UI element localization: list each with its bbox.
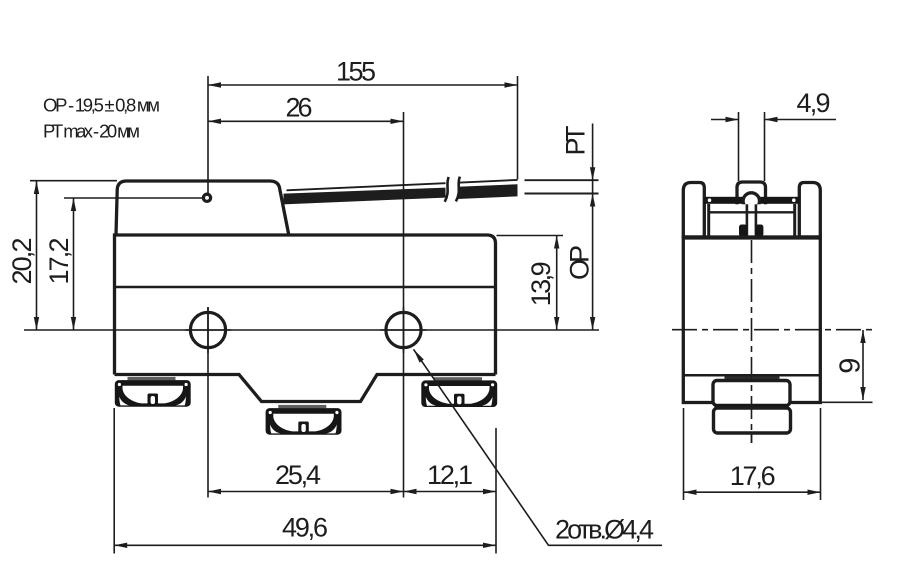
svg-text:17,6: 17,6 [730,461,776,491]
svg-text:РТ max - 20 мм: РТ max - 20 мм [43,121,140,142]
svg-text:26: 26 [286,92,313,122]
svg-text:17,2: 17,2 [44,238,74,285]
svg-text:OP: OP [565,245,595,280]
svg-text:13,9: 13,9 [526,261,556,306]
svg-text:49,6: 49,6 [282,513,328,543]
svg-text:PT: PT [561,126,591,156]
svg-text:20,2: 20,2 [7,238,37,285]
svg-text:9: 9 [835,358,867,374]
svg-text:ОР - 19,5 ± 0,8 мм: ОР - 19,5 ± 0,8 мм [43,95,160,116]
svg-text:12,1: 12,1 [427,460,473,490]
svg-text:155: 155 [336,57,376,87]
svg-text:25,4: 25,4 [275,460,321,490]
svg-text:4,9: 4,9 [797,88,831,118]
svg-text:2отв.Ø4,4: 2отв.Ø4,4 [555,515,654,545]
